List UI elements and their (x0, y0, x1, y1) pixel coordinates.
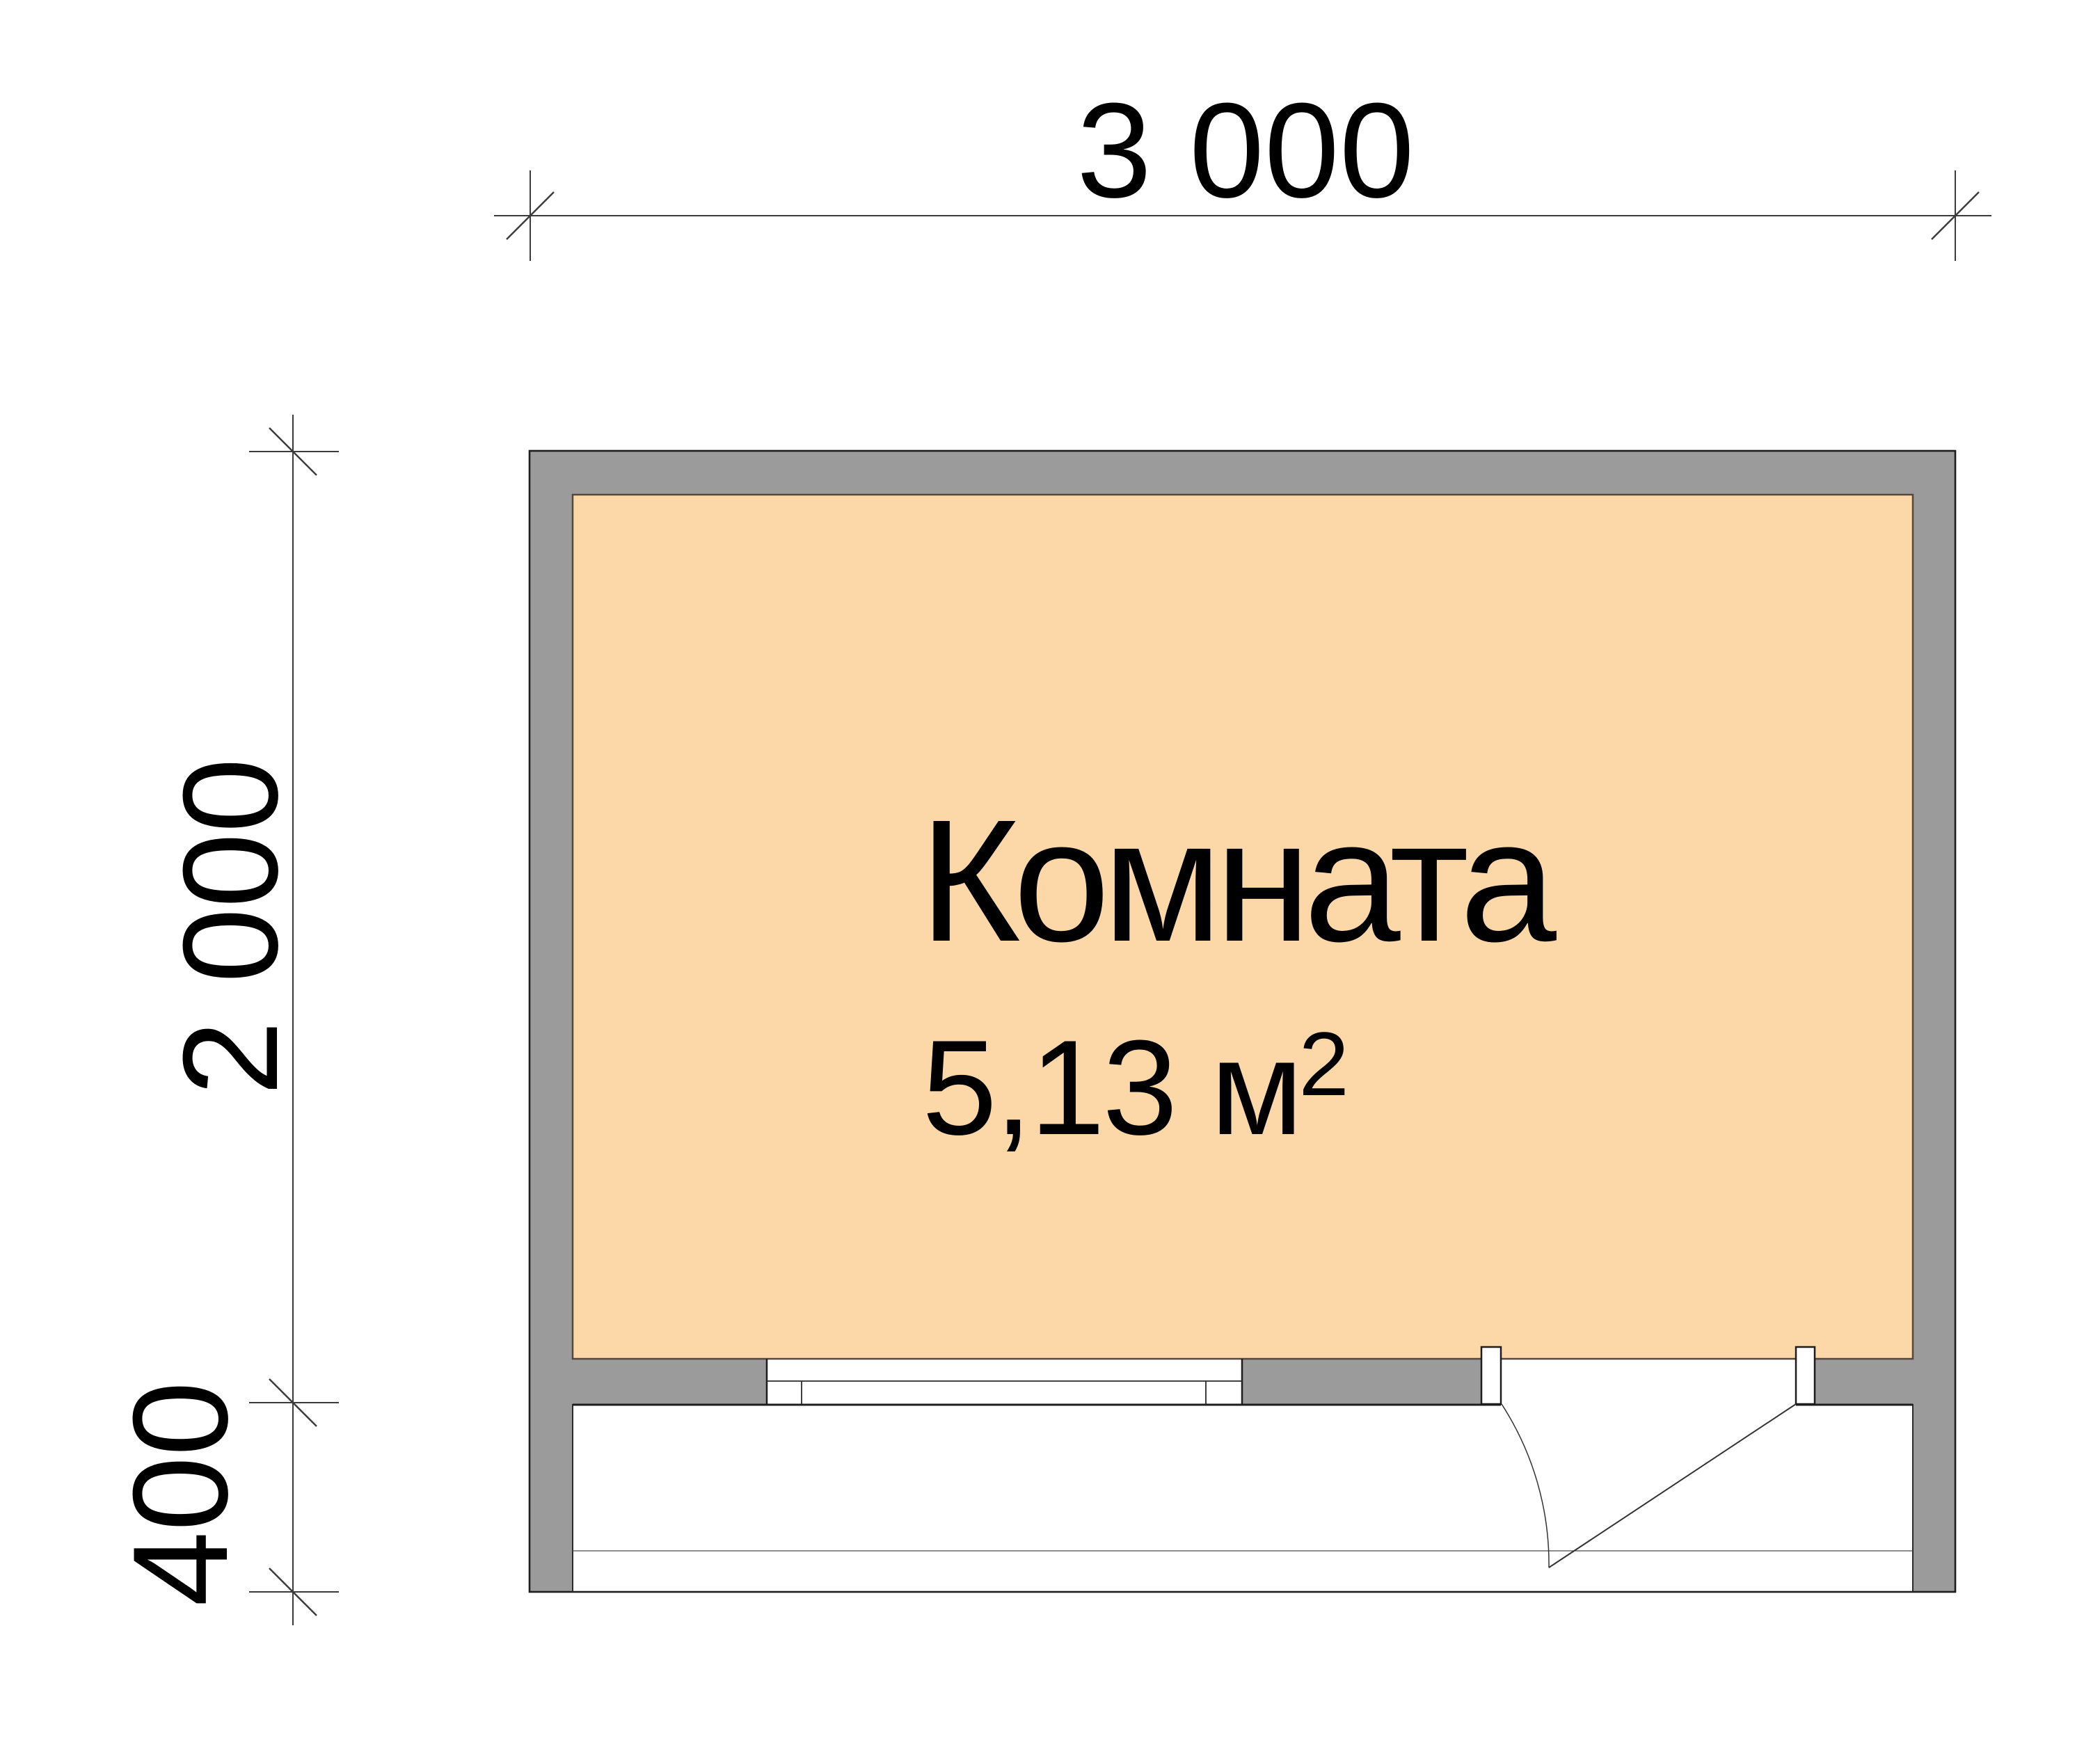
svg-text:Комната: Комната (919, 783, 1557, 978)
svg-text:400: 400 (105, 1381, 256, 1606)
svg-text:5,13 м2: 5,13 м2 (922, 1012, 1346, 1163)
svg-text:2 000: 2 000 (155, 758, 306, 1095)
svg-text:3 000: 3 000 (1076, 75, 1414, 226)
